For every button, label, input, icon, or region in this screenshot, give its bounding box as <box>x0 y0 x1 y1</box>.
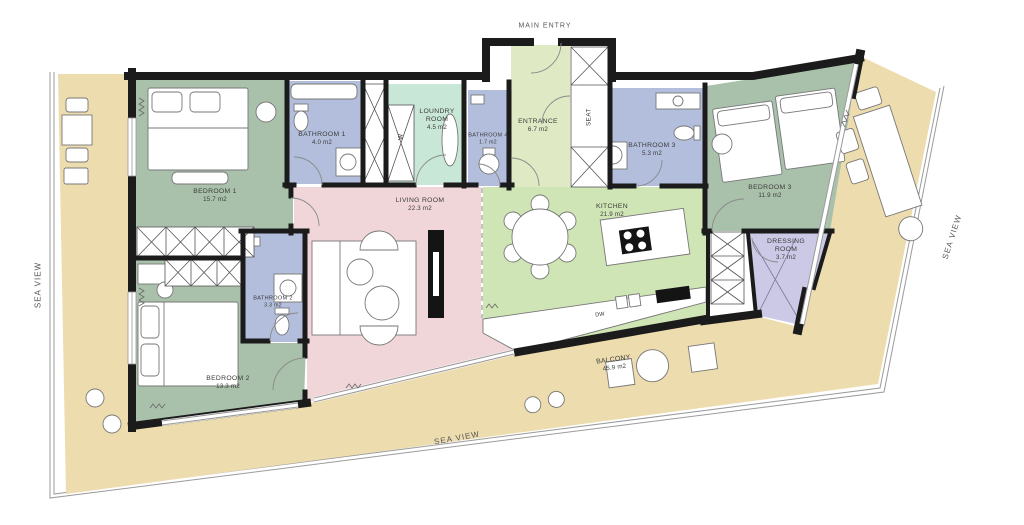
armchair-icon <box>256 102 276 122</box>
floor-plan: BEDROOM 1 15.7 m2 BEDROOM 2 13.3 m2 BEDR… <box>0 0 1024 525</box>
floor-plan-canvas <box>0 0 1024 525</box>
ironing-board-icon <box>442 114 458 166</box>
stool-icon <box>712 134 732 154</box>
sofa-icon <box>312 231 416 345</box>
room-entrance <box>511 45 570 187</box>
tv-screen-icon <box>433 252 439 296</box>
bed-2-icon <box>138 302 238 386</box>
bed-1-icon <box>148 88 248 184</box>
